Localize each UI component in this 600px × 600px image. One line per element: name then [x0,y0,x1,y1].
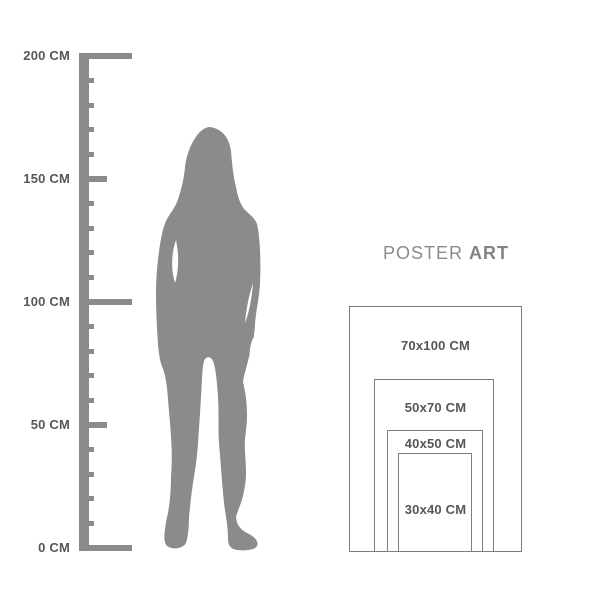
ruler-tick-minor [79,226,94,231]
woman-silhouette-icon [156,125,266,551]
ruler-tick-minor [79,127,94,132]
ruler-label-200: 200 CM [6,48,70,64]
ruler-tick-minor [79,324,94,329]
ruler-tick-minor [79,447,94,452]
size-label-70x100: 70x100 CM [349,339,522,353]
ruler-tick-minor [79,398,94,403]
ruler-tick-minor [79,496,94,501]
ruler-label-150: 150 CM [6,171,70,187]
ruler-label-100: 100 CM [6,294,70,310]
size-label-40x50: 40x50 CM [349,437,522,451]
ruler-tick-minor [79,373,94,378]
brand-title-regular: POSTER [383,243,463,263]
ruler-tick-minor [79,349,94,354]
ruler-tick-minor [79,472,94,477]
ruler-tick-0 [79,545,132,551]
brand-title-bold: ART [469,243,509,263]
ruler-tick-minor [79,201,94,206]
ruler-tick-150 [79,176,107,182]
ruler-tick-200 [79,53,132,59]
ruler-tick-50 [79,422,107,428]
ruler-tick-minor [79,521,94,526]
ruler-tick-100 [79,299,132,305]
ruler-tick-minor [79,275,94,280]
ruler-label-0: 0 CM [6,540,70,556]
size-label-50x70: 50x70 CM [349,401,522,415]
height-ruler: 200 CM 150 CM 100 CM 50 CM 0 CM [0,0,140,600]
ruler-tick-minor [79,103,94,108]
size-label-30x40: 30x40 CM [349,503,522,517]
ruler-tick-minor [79,78,94,83]
ruler-tick-minor [79,152,94,157]
ruler-label-50: 50 CM [6,417,70,433]
poster-size-guide: 200 CM 150 CM 100 CM 50 CM 0 CM POSTER A… [0,0,600,600]
brand-title: POSTER ART [383,243,509,264]
ruler-tick-minor [79,250,94,255]
